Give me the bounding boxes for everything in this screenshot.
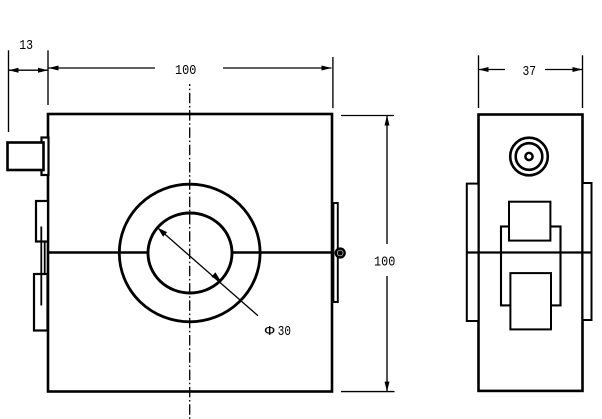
svg-text:13: 13 [19,38,33,54]
svg-text:Φ: Φ [265,324,275,340]
svg-text:100: 100 [374,254,395,270]
svg-text:100: 100 [175,63,196,79]
svg-text:37: 37 [523,64,537,80]
svg-text:30: 30 [278,324,291,340]
